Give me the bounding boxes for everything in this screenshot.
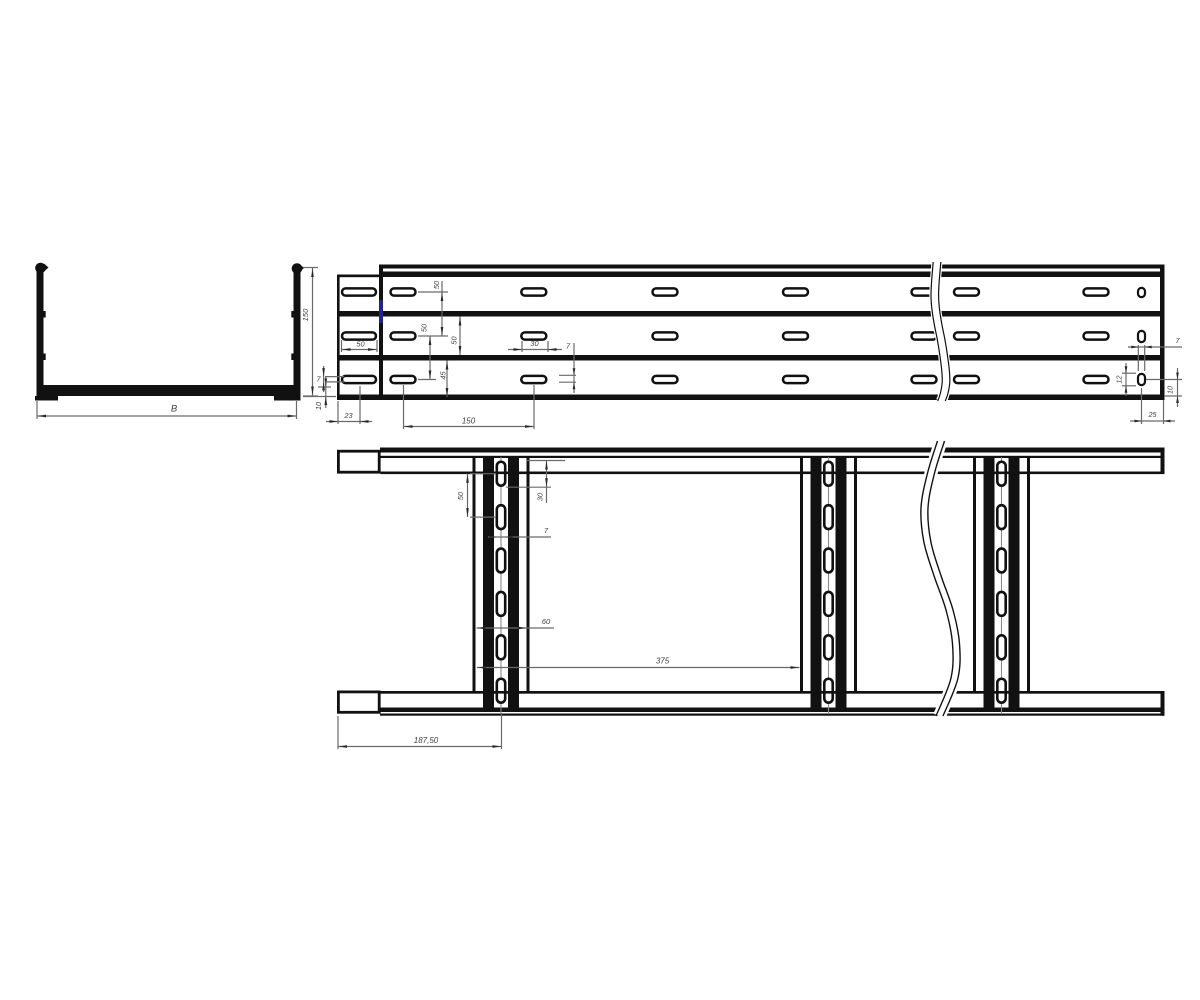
svg-text:50: 50 [456, 491, 465, 500]
svg-text:60: 60 [542, 617, 551, 626]
svg-text:375: 375 [656, 657, 670, 666]
svg-text:150: 150 [301, 308, 310, 321]
svg-text:30: 30 [530, 339, 539, 348]
svg-text:50: 50 [420, 323, 429, 332]
svg-text:50: 50 [356, 340, 365, 349]
svg-text:45: 45 [439, 371, 448, 380]
svg-text:10: 10 [1166, 386, 1175, 394]
svg-text:50: 50 [450, 336, 459, 345]
svg-text:150: 150 [462, 417, 476, 426]
svg-text:12: 12 [1115, 376, 1124, 384]
svg-text:187,50: 187,50 [414, 736, 439, 745]
svg-text:30: 30 [536, 492, 545, 501]
svg-text:23: 23 [343, 411, 353, 420]
svg-text:B: B [171, 404, 178, 415]
svg-text:50: 50 [432, 280, 441, 289]
svg-text:25: 25 [1148, 410, 1158, 419]
svg-text:10: 10 [314, 401, 323, 410]
